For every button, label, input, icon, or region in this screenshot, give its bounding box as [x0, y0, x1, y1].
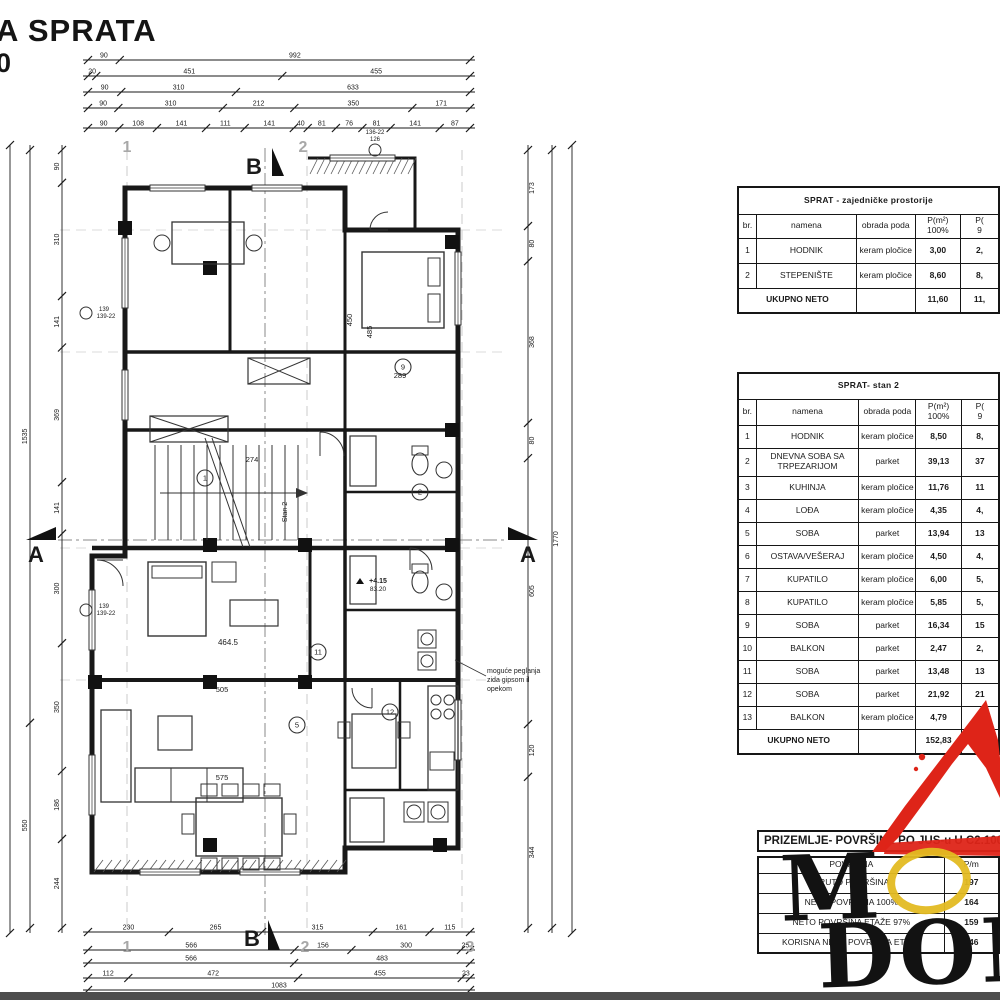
logo-red-arrow-icon: [872, 700, 1000, 852]
watermark-word-dom: DOM: [817, 903, 1000, 1000]
scan-edge-bar: [0, 992, 1000, 1000]
scanned-floor-plan-page: A SPRATA 0 90992204514559031063390310212…: [0, 0, 1000, 1000]
